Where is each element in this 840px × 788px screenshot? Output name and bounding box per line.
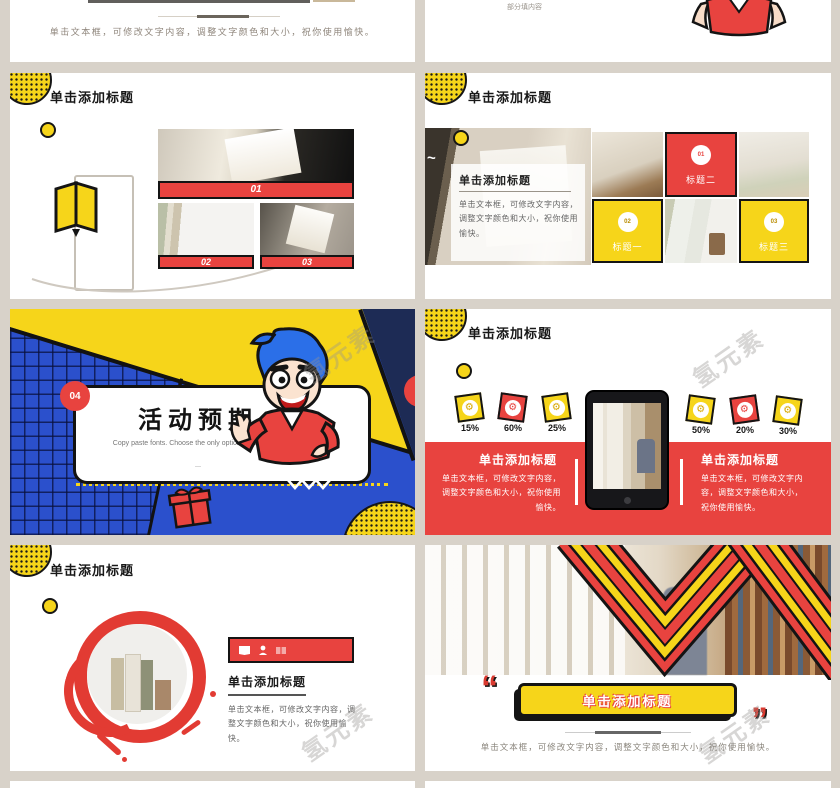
ink-brush-circle (68, 607, 218, 763)
slide-caption: 单击文本框，可修改文字内容，调整文字颜色和大小，祝你使用愉快。 (10, 25, 415, 38)
photo-open-book-panel: ~ 单击添加标题 单击文本框，可修改文字内容，调整文字颜色和大小，祝你使用愉快。 (425, 128, 591, 265)
stat-badge: ⚙ (497, 392, 527, 422)
ink-photo (87, 624, 187, 724)
tile-yellow-title-1: 02 标题一 (592, 199, 663, 263)
band-heading-left: 单击添加标题 (479, 451, 557, 468)
yellow-dot-decoration (456, 363, 472, 379)
slide-thumbnail-5-right[interactable] (425, 781, 831, 788)
close-quote-mark: ” (751, 703, 768, 737)
slide-note-text: 部分填内容 (507, 2, 627, 12)
stat-badge: ⚙ (541, 392, 571, 422)
gear-icon: ⚙ (460, 398, 478, 416)
photo-tile-books (739, 132, 809, 197)
book-spine (111, 658, 124, 710)
slide-thumbnail-3-right[interactable]: 单击添加标题 ⚙ ⚙ ⚙ ⚙ ⚙ ⚙ 15% 60% 25% 50% 20% 3… (425, 309, 831, 535)
open-book-icon (238, 645, 251, 656)
panel-body-text: 单击文本框，可修改文字内容，调整文字颜色和大小，祝你使用愉快。 (459, 198, 579, 241)
gift-box-icon (166, 483, 216, 533)
banner-title: 单击添加标题 (582, 691, 672, 710)
stat-badge: ⚙ (729, 394, 759, 424)
divider-accent (595, 731, 661, 734)
band-body-left: 单击文本框，可修改文字内容，调整文字颜色和大小，祝你使用愉快。 (439, 472, 561, 515)
squiggle-decoration: ~ (427, 150, 436, 167)
stat-percent: 50% (679, 425, 723, 435)
stat-badge: ⚙ (454, 392, 484, 422)
text-overlay-card: 单击添加标题 单击文本框，可修改文字内容，调整文字颜色和大小，祝你使用愉快。 (451, 164, 585, 261)
slide-thumbnail-1-left[interactable]: 单击文本框，可修改文字内容，调整文字颜色和大小，祝你使用愉快。 (10, 0, 415, 62)
zigzag-decoration (286, 477, 336, 491)
book-page-shape (225, 127, 302, 184)
cropped-shape-fragment (313, 0, 355, 2)
tile-label: 标题一 (612, 240, 642, 253)
gear-icon: ⚙ (778, 401, 796, 419)
slide-thumbnail-2-left[interactable]: 单击添加标题 01 02 03 (10, 73, 415, 299)
slide-title: 单击添加标题 (468, 323, 552, 342)
ink-dot (210, 691, 216, 697)
yellow-dot-decoration (42, 598, 58, 614)
slide-title: 单击添加标题 (468, 87, 552, 106)
slide-thumbnail-2-right[interactable]: 单击添加标题 ~ 单击添加标题 单击文本框，可修改文字内容，调整文字颜色和大小，… (425, 73, 831, 299)
band-divider (575, 459, 578, 505)
heading-divider (228, 694, 306, 696)
tile-label: 标题三 (759, 240, 789, 253)
tile-number: 01 (691, 145, 711, 165)
slide-thumbnail-1-right[interactable]: 部分填内容 (425, 0, 831, 62)
photo-tile-chair (592, 132, 663, 197)
dotted-circle-decoration (10, 545, 52, 577)
photo-tile-bottles (665, 199, 737, 263)
tile-number: 02 (618, 212, 638, 232)
section-number-badge: 04 (60, 381, 90, 411)
quote-banner: 单击添加标题 (518, 683, 737, 717)
photo-book-large (158, 129, 354, 181)
tablet-device (585, 390, 669, 510)
template-preview-page: 单击文本框，可修改文字内容，调整文字颜色和大小，祝你使用愉快。 部分填内容 单击… (0, 0, 840, 788)
stat-percent: 20% (723, 425, 767, 435)
slide-title: 单击添加标题 (50, 560, 134, 579)
cartoon-character-torso (687, 0, 791, 40)
stat-badge: ⚙ (685, 394, 715, 424)
slide-thumbnail-4-left[interactable]: 单击添加标题 单击添加标题 单击文本框，可修改文字内容，调整 (10, 545, 415, 771)
person-silhouette (637, 439, 655, 473)
dotted-circle-decoration (425, 73, 467, 105)
open-book-icon (48, 173, 104, 239)
band-body-right: 单击文本框，可修改文字内容，调整文字颜色和大小，祝你使用愉快。 (701, 472, 805, 515)
photo-books-small-2 (260, 203, 354, 255)
tile-red-title-2: 01 标题二 (665, 132, 737, 197)
book-spine (141, 660, 153, 710)
open-quote-mark: “ (481, 671, 498, 705)
pencil-cup-shape (709, 233, 725, 255)
gear-icon: ⚙ (691, 400, 709, 418)
stat-percent: 15% (448, 423, 492, 433)
quote-caption: 单击文本框，可修改文字内容，调整文字颜色和大小，祝你使用愉快。 (425, 741, 831, 753)
stat-percent: 30% (766, 426, 810, 436)
stat-percent: 25% (535, 423, 579, 433)
yellow-dot-decoration (453, 130, 469, 146)
slide-thumbnail-3-left[interactable]: 活动预期 Copy paste fonts. Choose the only o… (10, 309, 415, 535)
book-spine (125, 654, 141, 712)
dotted-circle-decoration (425, 309, 467, 341)
tile-yellow-title-3: 03 标题三 (739, 199, 809, 263)
dotted-circle-decoration (342, 501, 415, 535)
pencil-cup-shape (155, 680, 171, 710)
ink-dot (122, 757, 127, 762)
person-icon (258, 645, 268, 656)
number-bar-03: 03 (260, 255, 354, 269)
cropped-photo-fragment (88, 0, 310, 3)
gear-icon: ⚙ (735, 400, 753, 418)
book-icon (275, 646, 287, 655)
number-bar-01: 01 (158, 181, 354, 199)
tablet-photo (593, 403, 661, 489)
tile-number: 03 (764, 212, 784, 232)
gear-icon: ⚙ (547, 398, 565, 416)
content-body: 单击文本框，可修改文字内容，调整文字颜色和大小，祝你使用愉快。 (228, 703, 360, 746)
cartoon-boy-character (222, 327, 350, 483)
band-divider (680, 459, 683, 505)
watermark: 氢元素 (684, 319, 770, 394)
band-heading-right: 单击添加标题 (701, 451, 779, 468)
chevron-ribbon-decoration (425, 545, 831, 680)
book-page-shape (286, 205, 334, 253)
photo-books-small-1 (158, 203, 254, 255)
stat-percent: 60% (491, 423, 535, 433)
slide-thumbnail-5-left[interactable] (10, 781, 415, 788)
heading-underline (459, 191, 571, 192)
number-bar-02: 02 (158, 255, 254, 269)
content-heading: 单击添加标题 (228, 673, 306, 690)
divider-accent (197, 15, 249, 18)
icon-bar (228, 637, 354, 663)
tile-label: 标题二 (686, 173, 716, 186)
stat-badge: ⚙ (772, 395, 802, 425)
panel-heading: 单击添加标题 (459, 172, 531, 188)
slide-thumbnail-4-right[interactable]: “ 单击添加标题 ” 单击文本框，可修改文字内容，调整文字颜色和大小，祝你使用愉… (425, 545, 831, 771)
gear-icon: ⚙ (503, 398, 521, 416)
tablet-home-button (624, 497, 631, 504)
